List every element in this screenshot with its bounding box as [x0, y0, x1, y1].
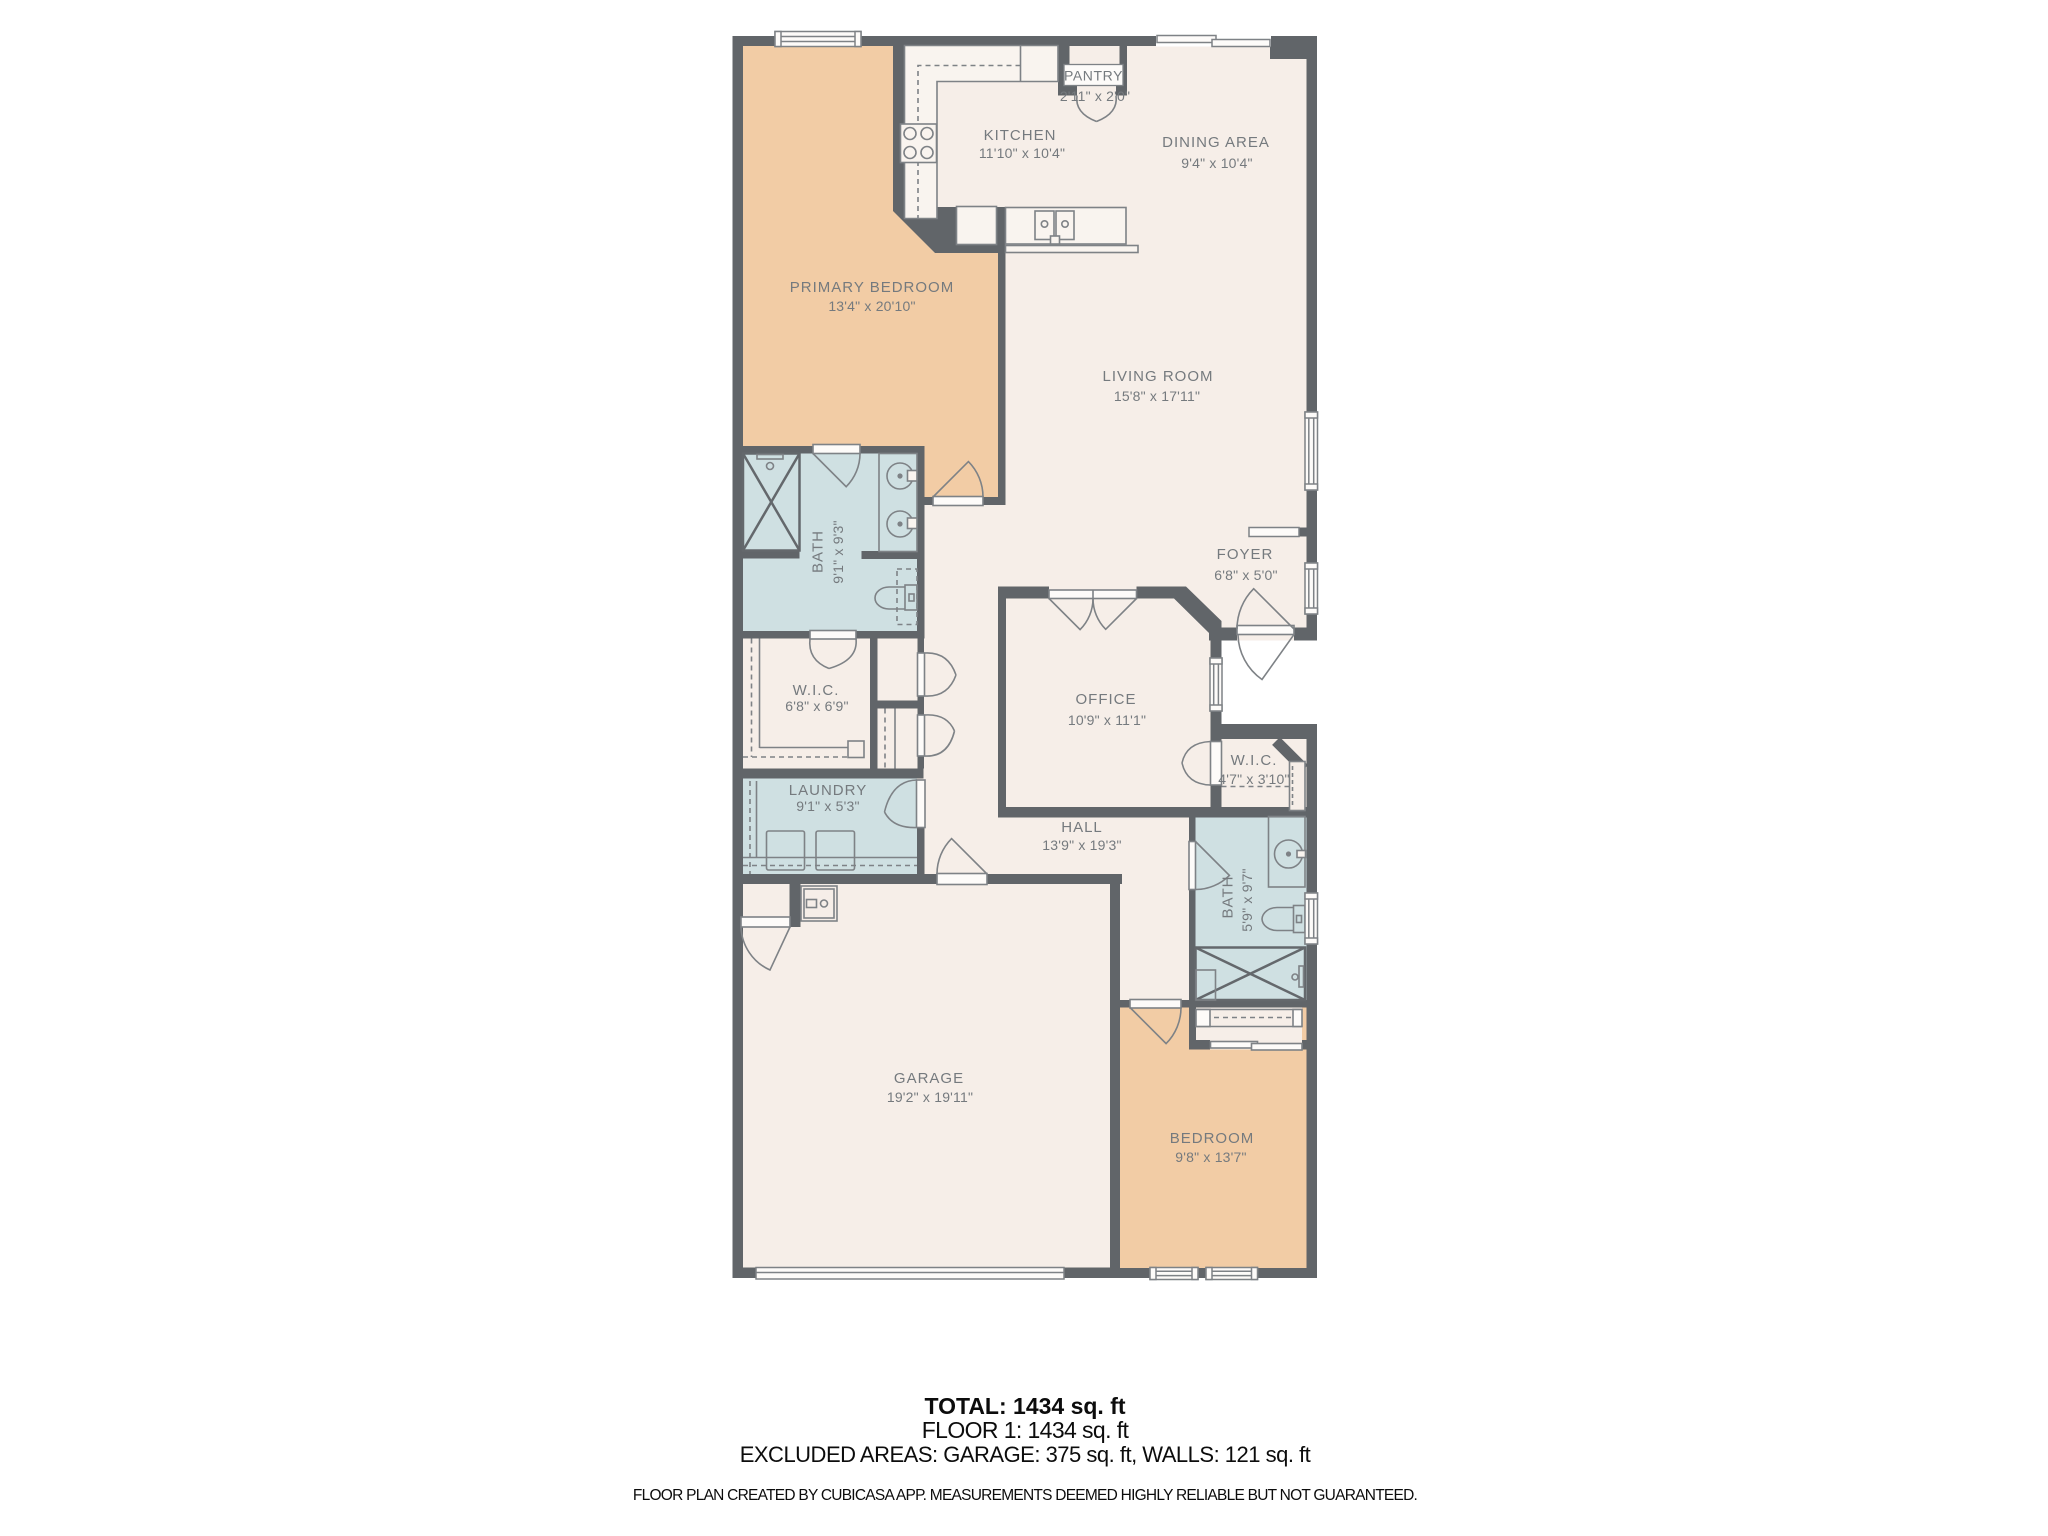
svg-text:LIVING ROOM: LIVING ROOM	[1102, 368, 1213, 385]
svg-text:GARAGE: GARAGE	[894, 1070, 964, 1087]
svg-text:9'1" x 5'3": 9'1" x 5'3"	[796, 798, 859, 814]
svg-text:13'4" x 20'10": 13'4" x 20'10"	[828, 298, 915, 314]
svg-text:10'9" x 11'1": 10'9" x 11'1"	[1068, 712, 1146, 728]
svg-text:OFFICE: OFFICE	[1076, 691, 1137, 708]
svg-text:TOTAL: 1434 sq. ft: TOTAL: 1434 sq. ft	[924, 1393, 1125, 1419]
svg-text:11'10" x 10'4": 11'10" x 10'4"	[979, 145, 1065, 161]
svg-text:LAUNDRY: LAUNDRY	[789, 782, 867, 799]
svg-text:19'2" x 19'11": 19'2" x 19'11"	[887, 1089, 973, 1105]
svg-text:9'1" x 9'3": 9'1" x 9'3"	[830, 520, 846, 583]
svg-text:4'7" x 3'10": 4'7" x 3'10"	[1218, 771, 1289, 787]
svg-text:15'8" x 17'11": 15'8" x 17'11"	[1114, 388, 1200, 404]
svg-text:BATH: BATH	[810, 530, 827, 573]
svg-text:6'8" x 5'0": 6'8" x 5'0"	[1214, 567, 1277, 583]
svg-text:FOYER: FOYER	[1217, 546, 1274, 563]
svg-text:9'4" x 10'4": 9'4" x 10'4"	[1181, 155, 1252, 171]
svg-text:BATH: BATH	[1220, 876, 1237, 919]
svg-text:9'8" x 13'7": 9'8" x 13'7"	[1175, 1149, 1246, 1165]
svg-text:PANTRY: PANTRY	[1064, 68, 1123, 84]
svg-text:5'9" x 9'7": 5'9" x 9'7"	[1239, 868, 1255, 931]
svg-text:FLOOR 1: 1434 sq. ft: FLOOR 1: 1434 sq. ft	[922, 1417, 1130, 1443]
svg-text:DINING AREA: DINING AREA	[1162, 134, 1270, 151]
svg-text:PRIMARY BEDROOM: PRIMARY BEDROOM	[790, 279, 954, 296]
svg-text:2'11" x 2'0": 2'11" x 2'0"	[1060, 88, 1130, 104]
svg-text:BEDROOM: BEDROOM	[1170, 1130, 1255, 1147]
svg-text:HALL: HALL	[1061, 819, 1103, 836]
svg-text:W.I.C.: W.I.C.	[793, 682, 840, 699]
svg-text:EXCLUDED AREAS: GARAGE: 375 sq: EXCLUDED AREAS: GARAGE: 375 sq. ft, WALL…	[740, 1442, 1311, 1467]
svg-text:FLOOR PLAN CREATED BY CUBICASA: FLOOR PLAN CREATED BY CUBICASA APP. MEAS…	[633, 1487, 1417, 1504]
svg-text:6'8" x 6'9": 6'8" x 6'9"	[785, 698, 848, 714]
svg-text:13'9" x 19'3": 13'9" x 19'3"	[1042, 837, 1121, 853]
svg-text:KITCHEN: KITCHEN	[984, 127, 1057, 144]
svg-text:W.I.C.: W.I.C.	[1231, 752, 1278, 769]
